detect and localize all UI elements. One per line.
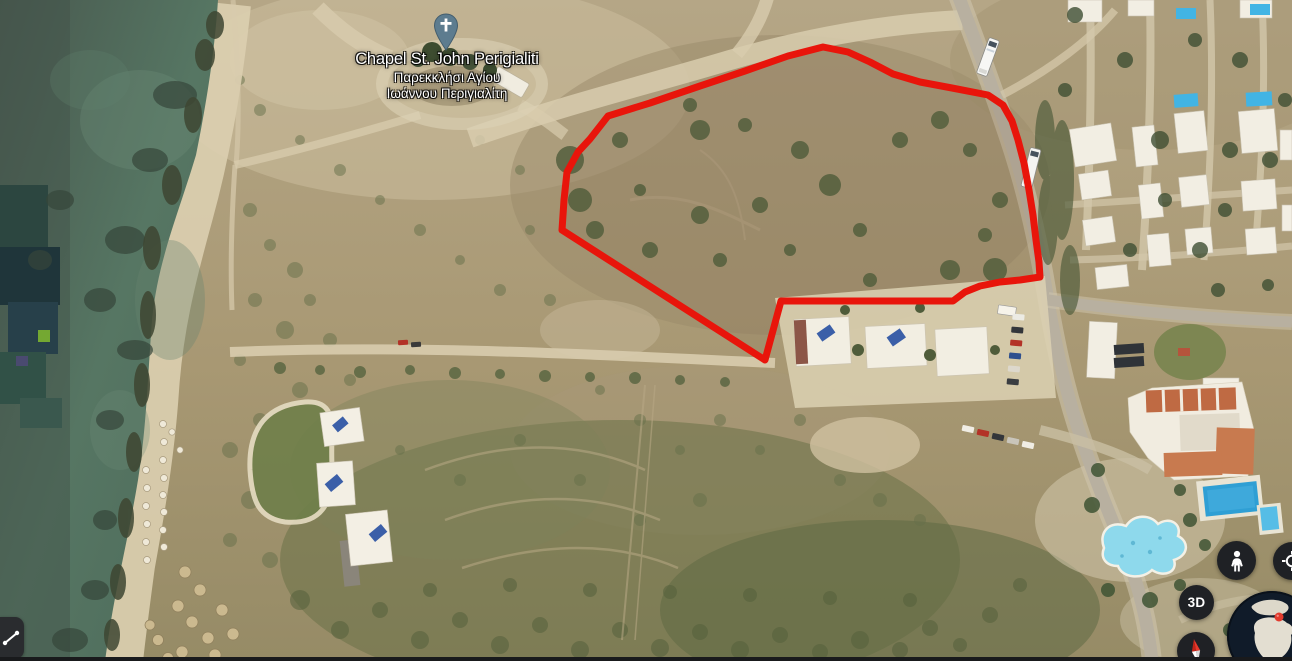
poi-subtitle-greek-2: Ιωάννου Περιγιαλίτη <box>290 87 604 102</box>
resort-pool-rect <box>1196 475 1264 521</box>
pegman-button[interactable] <box>1217 541 1256 580</box>
pegman-icon <box>1227 550 1247 572</box>
poi-label-chapel[interactable]: Chapel St. John Perigialiti Παρεκκλήσι Α… <box>290 51 604 102</box>
satellite-imagery <box>0 0 1292 661</box>
satellite-map-view[interactable]: Chapel St. John Perigialiti Παρεκκλήσι Α… <box>0 0 1292 661</box>
measure-tool-button[interactable] <box>0 617 24 659</box>
bottom-edge-strip <box>0 657 1292 661</box>
3d-view-button[interactable]: 3D <box>1179 585 1214 620</box>
my-location-icon <box>1282 551 1292 571</box>
poi-title: Chapel St. John Perigialiti <box>290 51 604 69</box>
poi-subtitle-greek-1: Παρεκκλήσι Αγίου <box>290 71 604 86</box>
church-pin-icon[interactable] <box>433 13 459 53</box>
3d-view-label: 3D <box>1188 595 1206 610</box>
measure-tool-icon <box>2 628 22 648</box>
